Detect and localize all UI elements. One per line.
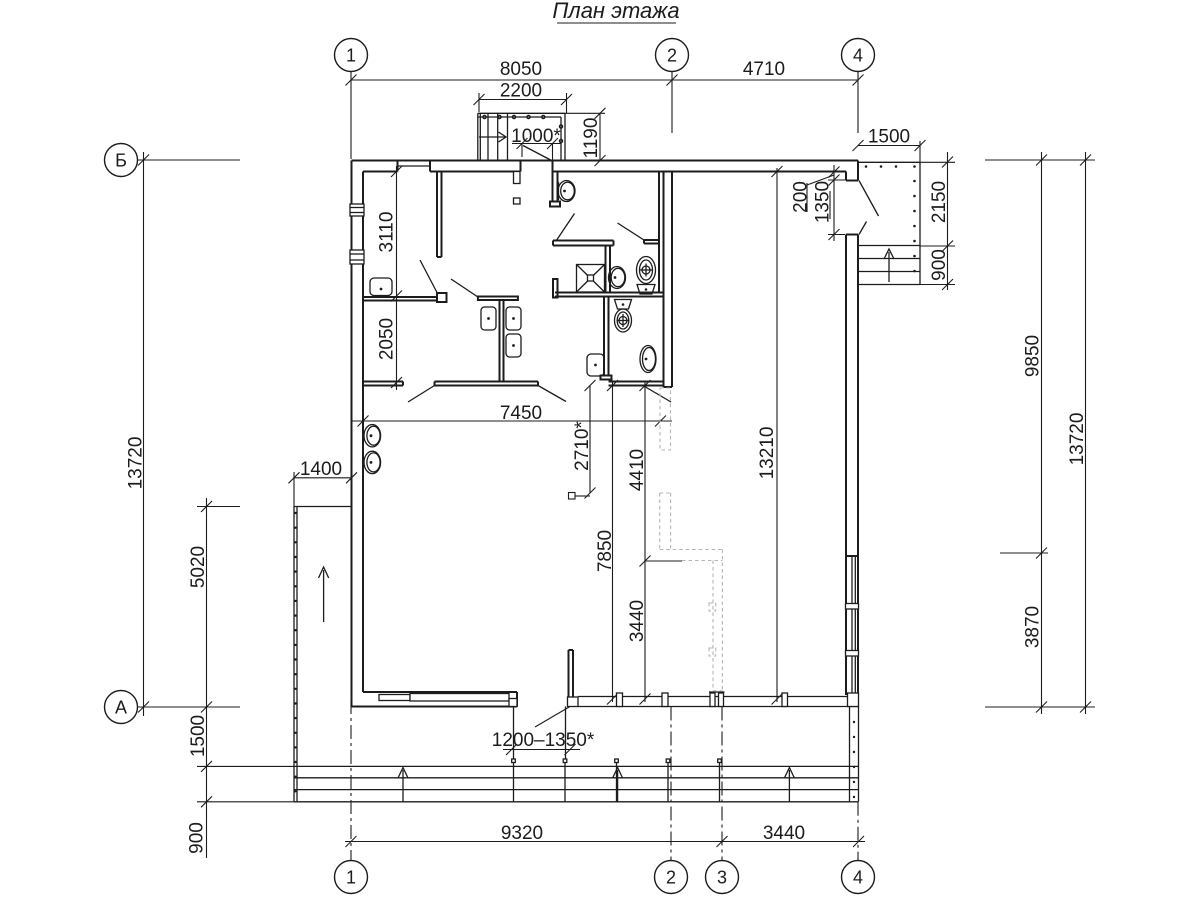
svg-text:4710: 4710	[743, 59, 785, 80]
svg-text:3870: 3870	[1023, 606, 1044, 648]
svg-text:3: 3	[717, 868, 727, 888]
svg-text:9850: 9850	[1023, 335, 1044, 377]
svg-text:А: А	[115, 698, 127, 718]
svg-text:2710*: 2710*	[572, 421, 593, 471]
svg-text:13720: 13720	[1067, 413, 1088, 466]
svg-text:2: 2	[667, 46, 677, 66]
svg-text:13720: 13720	[126, 437, 147, 490]
svg-text:8050: 8050	[500, 59, 542, 80]
svg-text:1400: 1400	[300, 459, 342, 480]
svg-text:План этажа: План этажа	[552, 0, 679, 23]
svg-text:1500: 1500	[188, 715, 209, 757]
svg-text:1: 1	[346, 46, 356, 66]
svg-text:7850: 7850	[595, 530, 616, 572]
svg-text:2: 2	[666, 868, 676, 888]
svg-text:4: 4	[853, 46, 863, 66]
svg-text:9320: 9320	[501, 823, 543, 844]
svg-text:1: 1	[346, 868, 356, 888]
svg-text:13210: 13210	[757, 427, 778, 480]
svg-text:1200–1350*: 1200–1350*	[492, 730, 595, 751]
svg-text:200: 200	[791, 181, 812, 213]
svg-text:1190: 1190	[581, 118, 602, 159]
svg-text:3440: 3440	[763, 823, 805, 844]
svg-text:2050: 2050	[377, 318, 398, 360]
svg-text:2150: 2150	[929, 181, 950, 223]
svg-text:3110: 3110	[377, 212, 398, 253]
svg-text:4: 4	[853, 868, 863, 888]
svg-text:3440: 3440	[627, 600, 648, 642]
svg-text:Б: Б	[115, 151, 127, 171]
svg-text:1000*: 1000*	[511, 126, 561, 147]
svg-text:5020: 5020	[188, 546, 209, 588]
svg-text:900: 900	[187, 822, 208, 854]
svg-text:1500: 1500	[868, 127, 910, 148]
svg-text:2200: 2200	[500, 81, 542, 102]
svg-text:1350: 1350	[813, 181, 834, 223]
svg-text:4410: 4410	[627, 449, 648, 491]
svg-text:900: 900	[929, 249, 950, 281]
svg-text:7450: 7450	[500, 403, 542, 424]
